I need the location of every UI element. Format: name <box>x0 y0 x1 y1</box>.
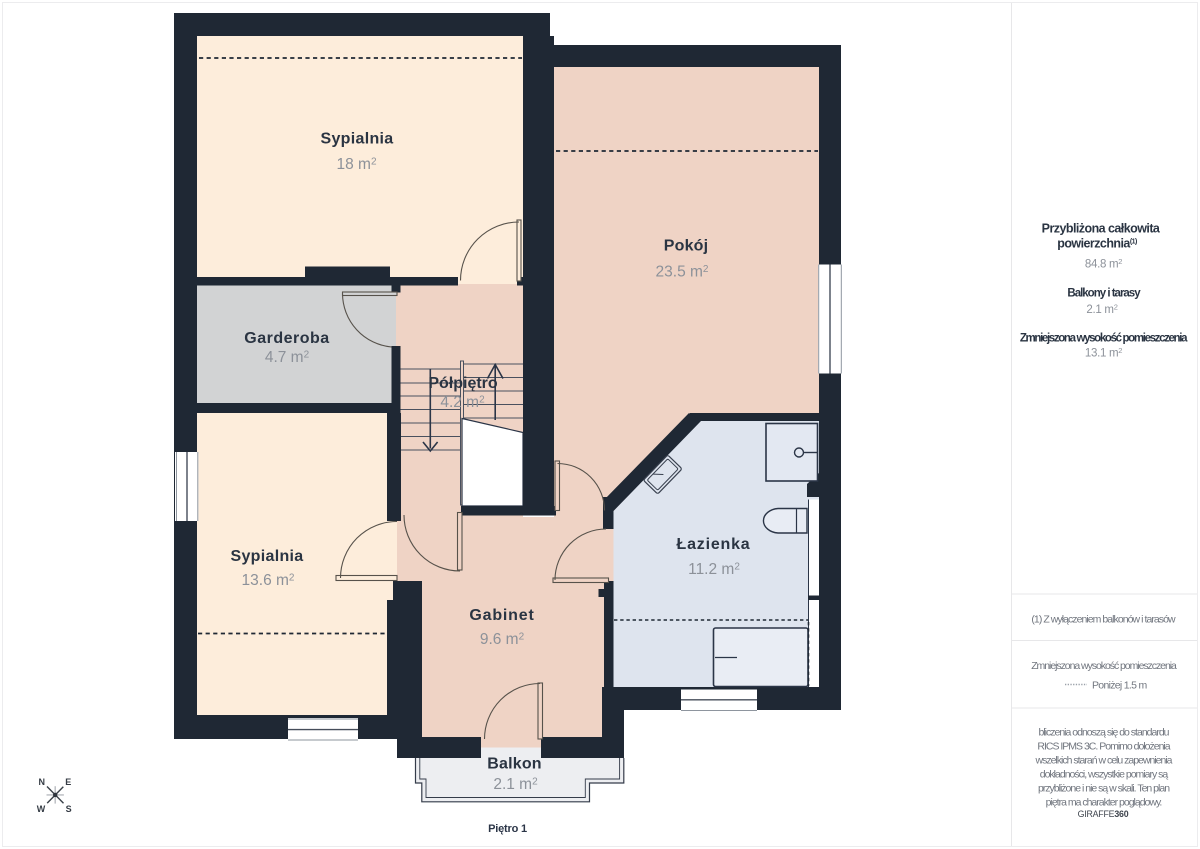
svg-text:2.1 m2: 2.1 m2 <box>493 776 538 793</box>
svg-text:13.6 m2: 13.6 m2 <box>242 572 295 589</box>
svg-text:2.1 m2: 2.1 m2 <box>1086 303 1117 317</box>
svg-text:Zmniejszona wysokość pomieszcz: Zmniejszona wysokość pomieszczenia <box>1031 660 1177 672</box>
svg-text:11.2 m2: 11.2 m2 <box>688 561 740 578</box>
svg-text:Piętro 1: Piętro 1 <box>488 823 527 835</box>
svg-text:Łazienka: Łazienka <box>677 536 751 553</box>
svg-text:Gabinet: Gabinet <box>469 607 534 624</box>
svg-text:9.6 m2: 9.6 m2 <box>480 631 525 648</box>
svg-text:23.5 m2: 23.5 m2 <box>656 264 709 281</box>
svg-text:dokładności, wszystkie pomiary: dokładności, wszystkie pomiary są <box>1040 769 1169 781</box>
svg-text:4.7 m2: 4.7 m2 <box>265 349 310 366</box>
svg-text:Zmniejszona wysokość pomieszcz: Zmniejszona wysokość pomieszczenia <box>1020 333 1188 345</box>
svg-text:Balkon: Balkon <box>487 756 542 773</box>
svg-text:powierzchnia(1): powierzchnia(1) <box>1057 237 1137 251</box>
svg-text:RICS IPMS 3C. Pomimo dołożenia: RICS IPMS 3C. Pomimo dołożenia <box>1037 741 1170 753</box>
svg-text:wszelkich starań w celu zapewn: wszelkich starań w celu zapewnienia <box>1035 755 1173 767</box>
svg-text:4.2 m2: 4.2 m2 <box>440 394 485 411</box>
svg-text:Sypialnia: Sypialnia <box>321 131 394 148</box>
svg-text:13.1 m2: 13.1 m2 <box>1085 346 1122 360</box>
svg-text:N: N <box>39 777 46 787</box>
svg-text:Sypialnia: Sypialnia <box>231 548 304 565</box>
svg-text:S: S <box>66 804 72 814</box>
svg-text:(1) Z wyłączeniem balkonów i t: (1) Z wyłączeniem balkonów i tarasów <box>1031 614 1176 626</box>
svg-text:GIRAFFE360: GIRAFFE360 <box>1078 809 1129 819</box>
svg-text:84.8 m2: 84.8 m2 <box>1085 257 1122 271</box>
svg-text:Garderoba: Garderoba <box>244 330 329 347</box>
svg-text:18 m2: 18 m2 <box>336 156 376 173</box>
svg-text:Balkony i tarasy: Balkony i tarasy <box>1067 288 1141 300</box>
svg-text:E: E <box>65 777 71 787</box>
svg-text:Przybliżona całkowita: Przybliżona całkowita <box>1042 222 1161 236</box>
svg-text:przybliżone i nie są w skali.: przybliżone i nie są w skali. Ten plan <box>1038 783 1170 795</box>
svg-text:W: W <box>37 804 46 814</box>
svg-text:Półpiętro: Półpiętro <box>428 375 498 392</box>
svg-text:Pokój: Pokój <box>664 238 709 255</box>
svg-text:Poniżej 1.5 m: Poniżej 1.5 m <box>1092 680 1147 692</box>
svg-text:piętra ma charakter poglądowy.: piętra ma charakter poglądowy. <box>1046 797 1162 809</box>
svg-text:bliczenia odnoszą się do stand: bliczenia odnoszą się do standardu <box>1038 727 1169 739</box>
